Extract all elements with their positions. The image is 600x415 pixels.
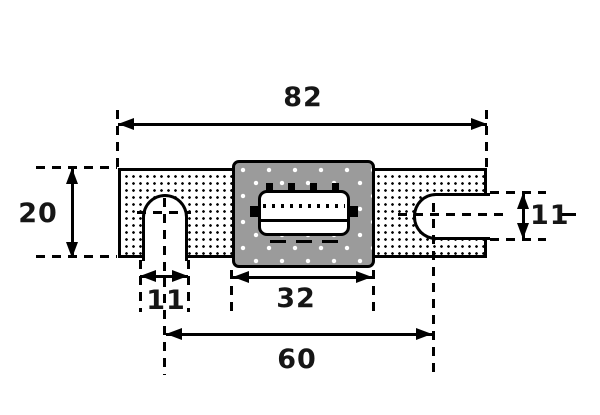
left-slot-horizontal-centerline bbox=[137, 211, 191, 214]
block-dim-line bbox=[233, 276, 372, 279]
fuse-element-mid-line bbox=[261, 219, 347, 222]
fuse-element-dotted-row bbox=[263, 204, 345, 208]
arrowhead-left-icon bbox=[140, 270, 156, 282]
technical-drawing-canvas: 82 20 11 32 60 11 bbox=[0, 0, 600, 415]
arrowhead-up-icon bbox=[66, 168, 78, 184]
element-right-tab bbox=[348, 206, 358, 217]
fuse-element-window bbox=[258, 190, 350, 236]
arrowhead-down-icon bbox=[66, 242, 78, 258]
window-rivet-bump bbox=[310, 183, 317, 192]
right-slot-centerline bbox=[432, 203, 435, 372]
right-mounting-slot bbox=[413, 193, 490, 240]
hole-spacing-dim-line bbox=[166, 333, 432, 336]
window-rivet-bump bbox=[332, 183, 339, 192]
window-rivet-bump bbox=[288, 183, 295, 192]
left-slot-extension-left bbox=[139, 260, 142, 312]
dim-label-right-slot-width: 11 bbox=[530, 202, 566, 229]
dim-label-block-length: 32 bbox=[274, 285, 318, 312]
overall-length-dim-line bbox=[118, 123, 487, 126]
window-rivet-bump bbox=[266, 183, 273, 192]
arrowhead-left-icon bbox=[166, 328, 182, 340]
dim-label-overall-length: 82 bbox=[275, 84, 331, 111]
arrowhead-left-icon bbox=[118, 118, 134, 130]
arrowhead-right-icon bbox=[416, 328, 432, 340]
dim-label-body-width: 20 bbox=[16, 200, 60, 227]
right-slot-horizontal-centerline bbox=[398, 213, 510, 216]
arrowhead-up-icon bbox=[517, 193, 529, 209]
block-hidden-edge-dashes bbox=[270, 240, 348, 243]
arrowhead-right-icon bbox=[356, 271, 372, 283]
arrowhead-right-icon bbox=[172, 270, 188, 282]
dim-label-hole-spacing: 60 bbox=[275, 346, 319, 373]
arrowhead-left-icon bbox=[233, 271, 249, 283]
block-extension-right bbox=[372, 270, 375, 315]
arrowhead-right-icon bbox=[471, 118, 487, 130]
dim-label-left-slot-width: 11 bbox=[144, 287, 188, 314]
arrowhead-down-icon bbox=[517, 223, 529, 239]
element-left-tab bbox=[250, 206, 260, 217]
